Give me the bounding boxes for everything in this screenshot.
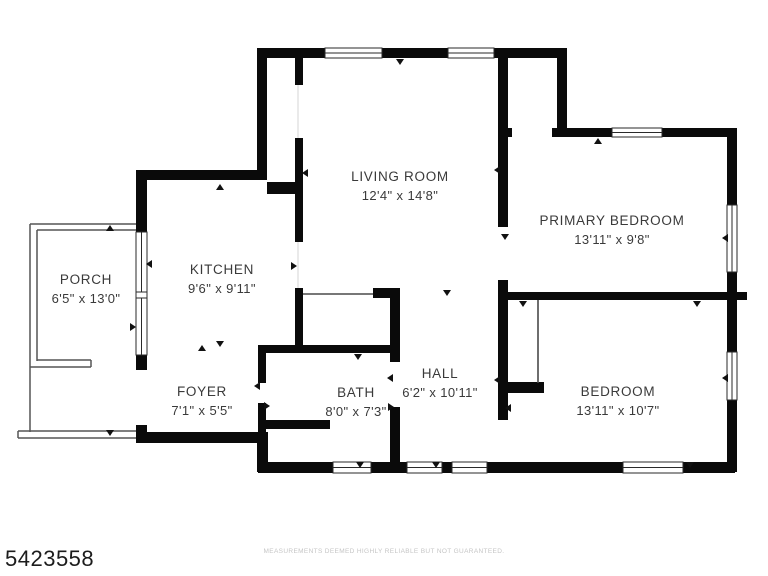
room-label-bedroom: BEDROOM xyxy=(581,384,656,399)
floor-plan-svg: PORCH 6'5" x 13'0" KITCHEN 9'6" x 9'11" … xyxy=(0,0,768,576)
room-label-kitchen: KITCHEN xyxy=(190,262,254,277)
disclaimer-text: MEASUREMENTS DEEMED HIGHLY RELIABLE BUT … xyxy=(0,548,768,555)
room-dims-kitchen: 9'6" x 9'11" xyxy=(188,281,256,296)
floor-plan-page: PORCH 6'5" x 13'0" KITCHEN 9'6" x 9'11" … xyxy=(0,0,768,576)
porch-outline xyxy=(18,224,136,438)
room-dims-bedroom: 13'11" x 10'7" xyxy=(576,403,659,418)
room-dims-primary-bedroom: 13'11" x 9'8" xyxy=(574,232,650,247)
room-dims-hall: 6'2" x 10'11" xyxy=(402,385,478,400)
room-dims-foyer: 7'1" x 5'5" xyxy=(171,403,232,418)
room-dims-porch: 6'5" x 13'0" xyxy=(52,291,121,306)
room-label-foyer: FOYER xyxy=(177,384,227,399)
room-label-living-room: LIVING ROOM xyxy=(351,169,449,184)
room-label-porch: PORCH xyxy=(60,272,112,287)
room-label-bath: BATH xyxy=(337,385,375,400)
room-label-primary-bedroom: PRIMARY BEDROOM xyxy=(539,213,684,228)
room-label-hall: HALL xyxy=(422,366,459,381)
room-dims-living-room: 12'4" x 14'8" xyxy=(362,188,439,203)
room-dims-bath: 8'0" x 7'3" xyxy=(325,404,386,419)
